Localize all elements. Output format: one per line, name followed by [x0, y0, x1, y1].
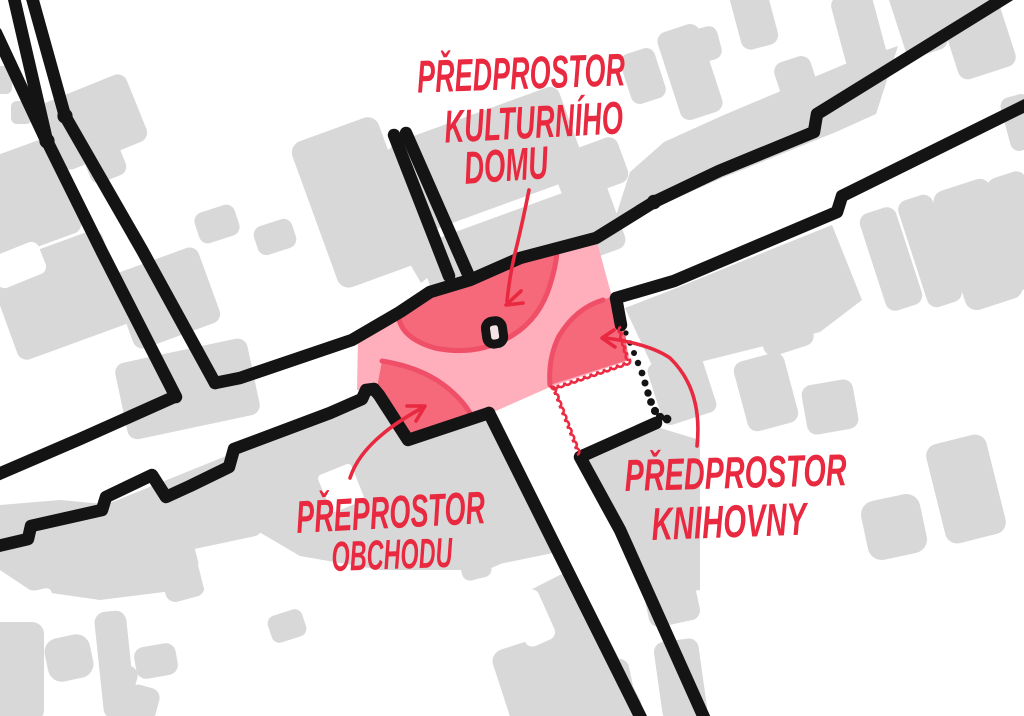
svg-text:OBCHODU: OBCHODU	[331, 529, 454, 580]
svg-text:PŘEDPROSTOR: PŘEDPROSTOR	[624, 444, 848, 501]
svg-text:KNIHOVNY: KNIHOVNY	[651, 493, 810, 550]
svg-text:DOMU: DOMU	[462, 136, 550, 194]
